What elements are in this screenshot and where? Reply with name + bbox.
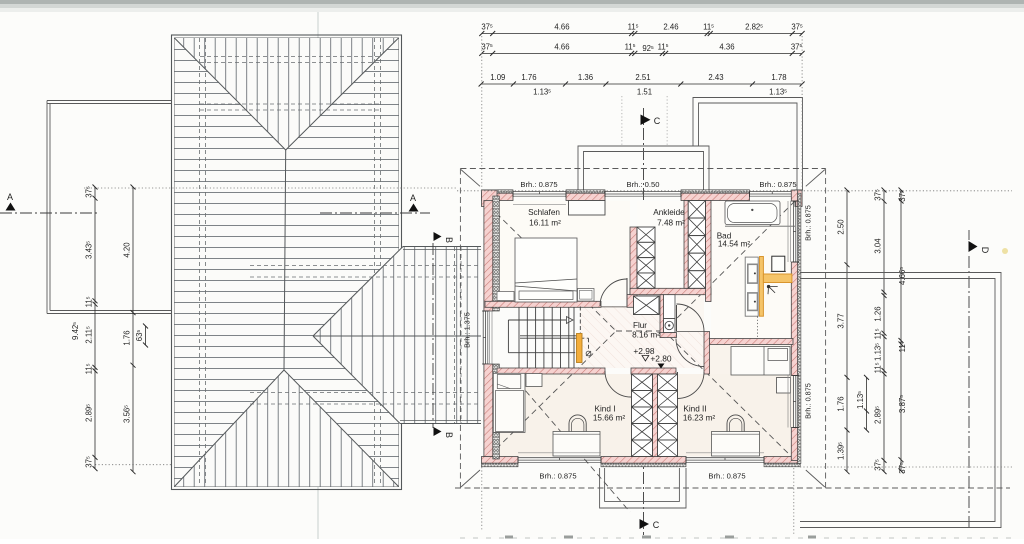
svg-text:8.16 m²: 8.16 m² bbox=[632, 331, 660, 340]
svg-text:16.11 m²: 16.11 m² bbox=[529, 219, 561, 228]
svg-text:14.54 m²: 14.54 m² bbox=[718, 240, 751, 249]
svg-text:Kind I: Kind I bbox=[595, 405, 616, 414]
svg-text:Brh.: 0.875: Brh.: 0.875 bbox=[804, 205, 813, 241]
svg-text:2.43: 2.43 bbox=[708, 73, 723, 82]
svg-text:Schlafen: Schlafen bbox=[528, 208, 560, 217]
svg-text:Brh.: 0.875: Brh.: 0.875 bbox=[804, 383, 813, 419]
svg-text:A: A bbox=[7, 192, 13, 202]
svg-text:B: B bbox=[444, 237, 454, 243]
svg-text:16.23 m²: 16.23 m² bbox=[683, 414, 716, 423]
svg-text:1.76: 1.76 bbox=[123, 330, 132, 345]
svg-text:3.04: 3.04 bbox=[874, 238, 883, 254]
svg-text:2.50: 2.50 bbox=[837, 219, 846, 235]
svg-text:Brh.: 0.875: Brh.: 0.875 bbox=[539, 472, 576, 481]
svg-text:Kind II: Kind II bbox=[683, 405, 706, 414]
svg-text:Brh.: 1.375: Brh.: 1.375 bbox=[463, 312, 472, 348]
svg-text:4.36: 4.36 bbox=[719, 42, 734, 51]
svg-text:4.66: 4.66 bbox=[554, 23, 569, 32]
svg-text:1.76: 1.76 bbox=[521, 73, 536, 82]
svg-text:B: B bbox=[444, 432, 454, 438]
svg-text:3.77: 3.77 bbox=[837, 313, 846, 328]
svg-text:1.36: 1.36 bbox=[578, 73, 593, 82]
svg-text:A: A bbox=[410, 193, 416, 203]
svg-text:Flur: Flur bbox=[633, 321, 647, 330]
svg-text:2.51: 2.51 bbox=[635, 73, 650, 82]
svg-text:Brh.: 0.875: Brh.: 0.875 bbox=[708, 472, 745, 481]
svg-text:Brh.: 0.875: Brh.: 0.875 bbox=[520, 180, 557, 189]
svg-text:C: C bbox=[654, 116, 661, 126]
svg-text:7.48 m²: 7.48 m² bbox=[657, 219, 685, 228]
svg-text:15.66 m²: 15.66 m² bbox=[593, 414, 626, 423]
svg-text:1.51: 1.51 bbox=[637, 88, 652, 97]
svg-text:2.46: 2.46 bbox=[663, 23, 678, 32]
svg-text:1.09: 1.09 bbox=[490, 73, 505, 82]
svg-text:Ankleide: Ankleide bbox=[653, 208, 685, 217]
svg-text:Brh.: 0.875: Brh.: 0.875 bbox=[759, 180, 796, 189]
svg-text:1.26: 1.26 bbox=[874, 306, 883, 321]
svg-text:4.66: 4.66 bbox=[554, 42, 569, 51]
svg-text:Brh.: 0.50: Brh.: 0.50 bbox=[627, 180, 660, 189]
svg-text:4.20: 4.20 bbox=[123, 242, 132, 258]
svg-text:1.78: 1.78 bbox=[771, 73, 786, 82]
svg-text:1.76: 1.76 bbox=[837, 396, 846, 411]
svg-text:C: C bbox=[653, 520, 660, 530]
svg-text:+2.80: +2.80 bbox=[650, 354, 672, 364]
svg-text:D: D bbox=[980, 247, 990, 254]
